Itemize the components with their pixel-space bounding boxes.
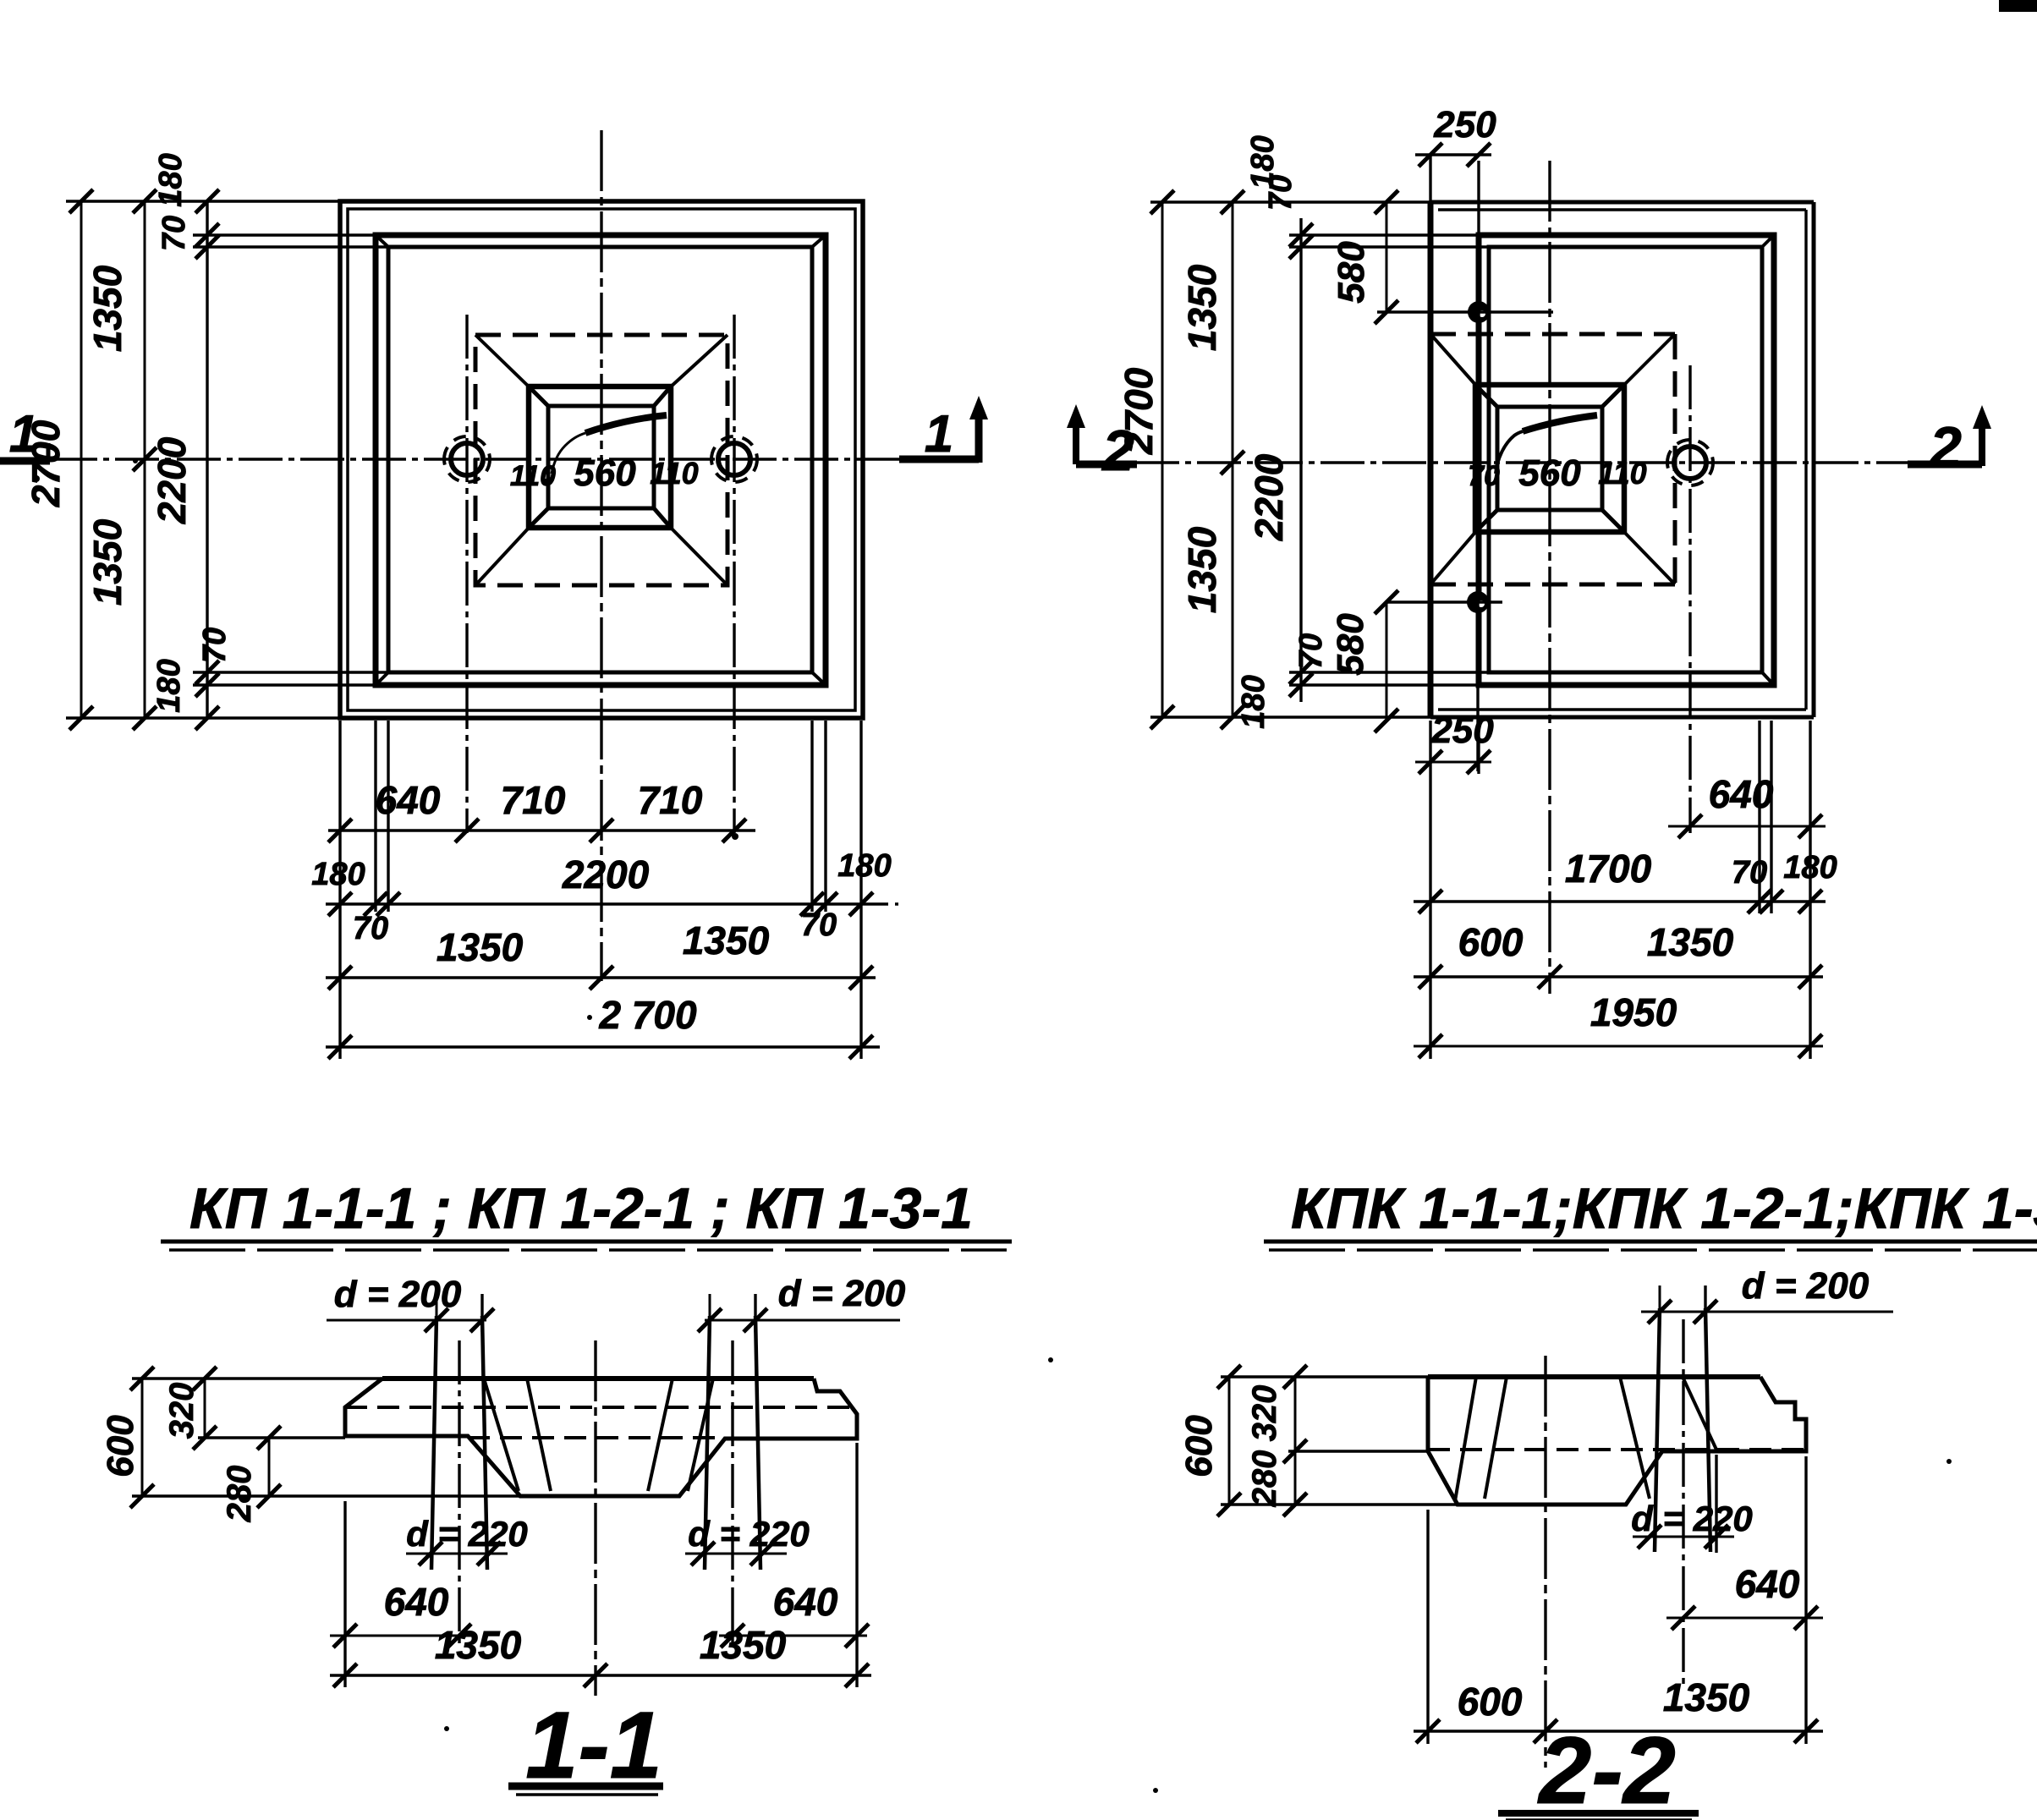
svg-text:d = 200: d = 200 — [334, 1274, 462, 1315]
svg-text:70: 70 — [1732, 855, 1767, 891]
svg-text:110: 110 — [1598, 456, 1646, 491]
svg-text:580: 580 — [1331, 241, 1372, 304]
svg-text:d = 220: d = 220 — [1631, 1499, 1753, 1538]
svg-text:70: 70 — [1293, 633, 1329, 669]
svg-text:600: 600 — [1458, 1680, 1523, 1724]
svg-text:180: 180 — [1236, 675, 1271, 728]
svg-text:70: 70 — [801, 907, 837, 943]
svg-text:640: 640 — [1735, 1562, 1800, 1606]
svg-text:70: 70 — [156, 216, 192, 251]
svg-text:180: 180 — [151, 659, 187, 712]
svg-text:180: 180 — [153, 153, 189, 206]
svg-text:1350: 1350 — [85, 265, 129, 352]
svg-text:1350: 1350 — [85, 518, 129, 606]
svg-text:1350: 1350 — [1180, 526, 1224, 613]
svg-text:280: 280 — [1246, 1450, 1283, 1508]
svg-text:180: 180 — [837, 848, 891, 884]
svg-text:600: 600 — [1178, 1415, 1220, 1477]
svg-text:70: 70 — [353, 911, 388, 946]
svg-text:710: 710 — [638, 778, 703, 822]
svg-text:180: 180 — [1783, 850, 1837, 885]
svg-text:580: 580 — [1330, 613, 1371, 676]
svg-text:2200: 2200 — [562, 852, 650, 896]
svg-text:110: 110 — [510, 460, 556, 492]
svg-text:320: 320 — [163, 1383, 200, 1439]
svg-text:1: 1 — [925, 405, 953, 463]
svg-text:640: 640 — [773, 1580, 838, 1624]
svg-text:600: 600 — [100, 1415, 141, 1477]
svg-text:1350: 1350 — [1180, 264, 1224, 351]
svg-text:70: 70 — [1263, 175, 1299, 211]
svg-text:2-2: 2-2 — [1537, 1718, 1676, 1820]
svg-text:d = 200: d = 200 — [778, 1273, 906, 1314]
svg-text:110: 110 — [650, 456, 698, 491]
svg-text:d = 220: d = 220 — [406, 1514, 528, 1554]
svg-text:600: 600 — [1458, 920, 1524, 964]
svg-text:2200: 2200 — [150, 436, 194, 524]
svg-text:250: 250 — [1430, 710, 1494, 751]
svg-text:1950: 1950 — [1590, 990, 1677, 1034]
svg-text:1-1: 1-1 — [525, 1692, 662, 1798]
svg-text:1350: 1350 — [1647, 920, 1734, 964]
svg-text:280: 280 — [221, 1466, 258, 1523]
svg-text:2 700: 2 700 — [598, 993, 697, 1037]
svg-text:1700: 1700 — [1565, 847, 1652, 891]
svg-text:КПК 1-1-1;КПК 1-2-1;КПК 1-3-1: КПК 1-1-1;КПК 1-2-1;КПК 1-3-1 — [1291, 1176, 2037, 1241]
svg-text:640: 640 — [376, 778, 441, 822]
svg-text:2700: 2700 — [24, 419, 68, 507]
svg-text:250: 250 — [1433, 104, 1496, 145]
svg-text:70: 70 — [1468, 460, 1500, 492]
svg-text:2700: 2700 — [1117, 367, 1161, 455]
svg-text:320: 320 — [1246, 1385, 1283, 1442]
svg-text:640: 640 — [1709, 772, 1774, 816]
svg-text:180: 180 — [311, 857, 365, 892]
svg-text:1350: 1350 — [436, 925, 524, 969]
svg-text:2200: 2200 — [1247, 453, 1291, 541]
svg-text:70: 70 — [197, 628, 233, 663]
svg-text:1350: 1350 — [683, 918, 770, 962]
svg-text:1350: 1350 — [700, 1623, 787, 1667]
svg-text:640: 640 — [384, 1580, 449, 1624]
svg-text:2: 2 — [1928, 415, 1962, 480]
svg-text:1350: 1350 — [1663, 1675, 1750, 1719]
svg-text:710: 710 — [501, 778, 566, 822]
svg-text:d = 200: d = 200 — [1742, 1265, 1870, 1307]
svg-text:КП 1-1-1 ; КП 1-2-1 ; КП 1-3: КП 1-1-1 ; КП 1-2-1 ; КП 1-3-1 — [189, 1176, 973, 1241]
svg-text:1350: 1350 — [435, 1623, 522, 1667]
